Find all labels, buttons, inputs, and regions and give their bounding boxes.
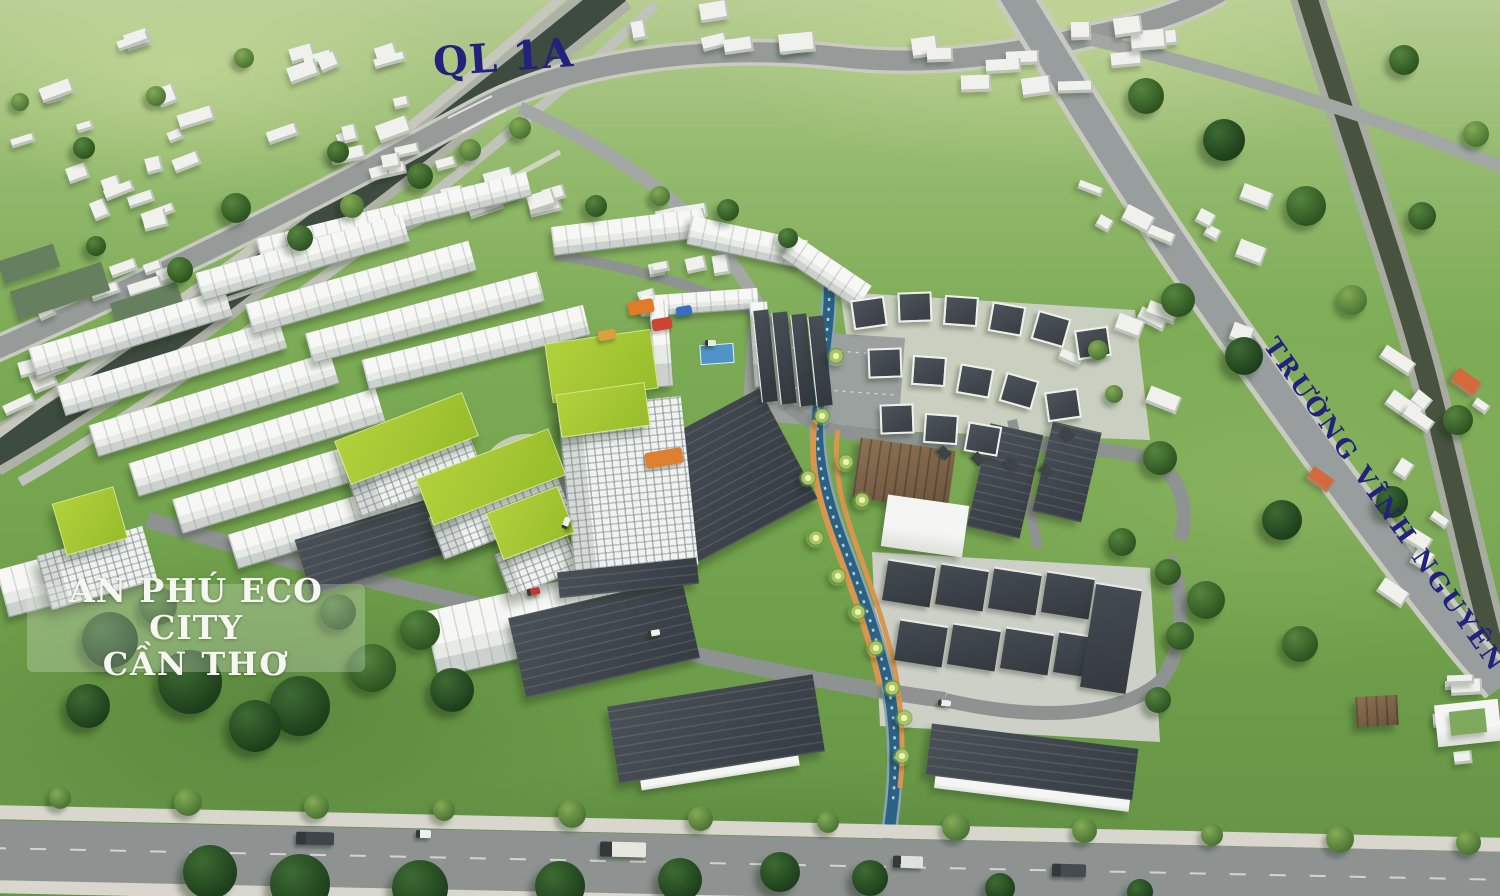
road-label-ql-1a: QL 1A (432, 29, 576, 86)
project-title-watermark: AN PHÚ ECO CITY CẦN THƠ (27, 584, 365, 672)
vehicle (416, 830, 431, 838)
vehicle (296, 832, 334, 846)
vehicle (526, 587, 540, 597)
vehicle (1052, 864, 1086, 878)
vehicle (648, 629, 661, 637)
project-title-line2: CẦN THƠ (103, 646, 290, 683)
project-title-line1: AN PHÚ ECO CITY (27, 573, 365, 646)
vehicle (561, 516, 571, 529)
vehicle (600, 841, 646, 857)
aerial-masterplan-render: QL 1A TRƯỜNG VĨNH NGUYÊN AN PHÚ ECO CITY… (0, 0, 1500, 896)
vehicle (893, 856, 923, 869)
vehicles-layer (0, 0, 1500, 896)
vehicle (938, 699, 952, 706)
vehicle (705, 340, 716, 346)
